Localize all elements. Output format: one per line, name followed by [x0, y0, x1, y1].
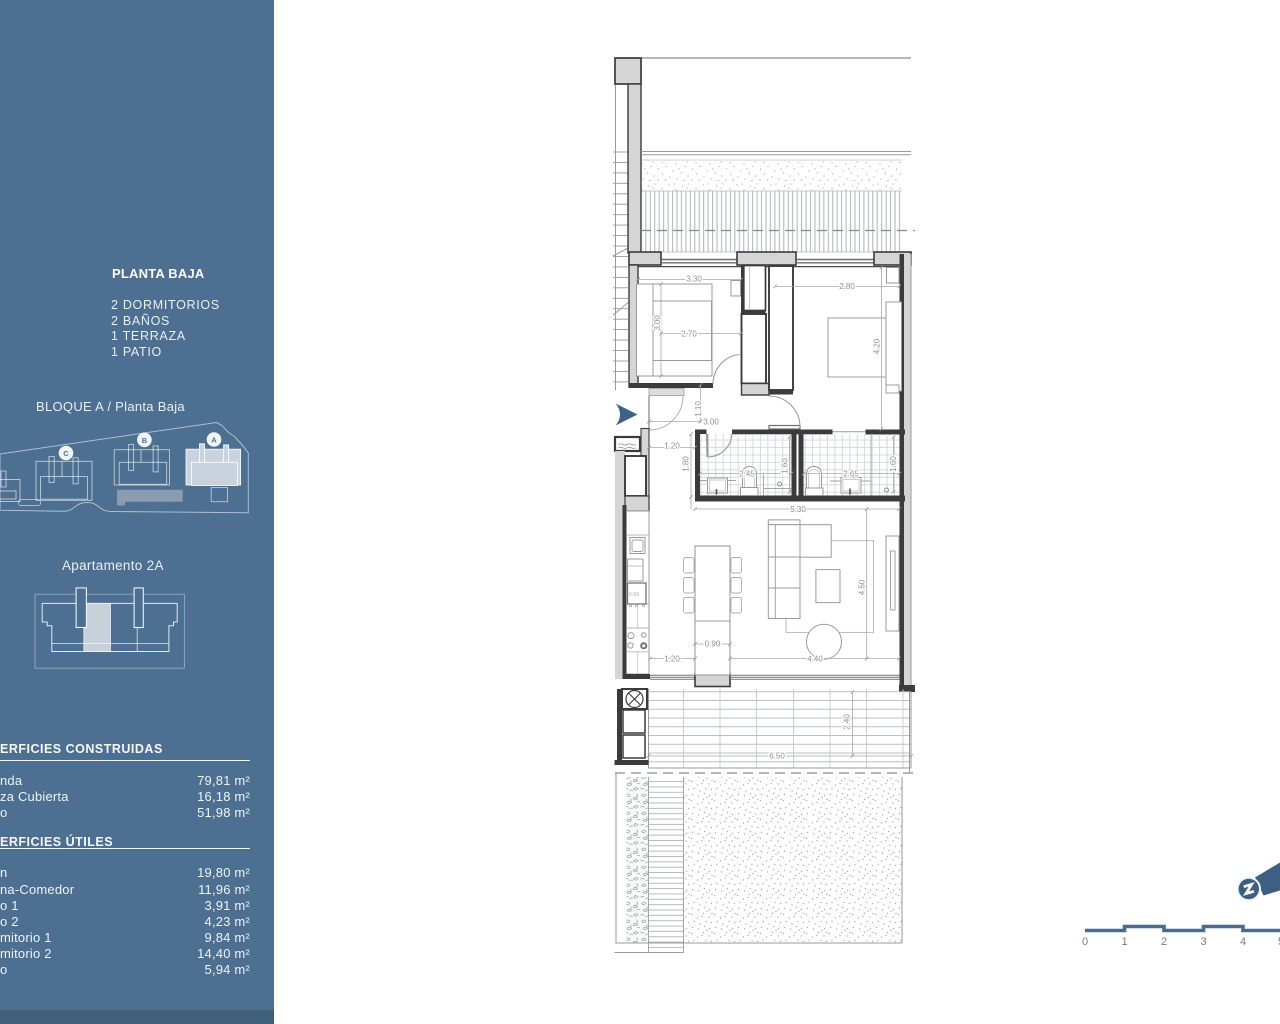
svg-text:0.90: 0.90 — [705, 640, 721, 649]
svg-text:1.20: 1.20 — [664, 442, 680, 451]
svg-text:A: A — [211, 436, 217, 445]
svg-text:2.65: 2.65 — [843, 470, 859, 479]
svg-text:3.00: 3.00 — [653, 315, 662, 331]
svg-text:3.30: 3.30 — [686, 275, 702, 284]
svg-text:C: C — [63, 449, 69, 458]
svg-text:0.60: 0.60 — [629, 592, 640, 598]
svg-text:0: 0 — [1082, 936, 1088, 948]
svg-text:1.10: 1.10 — [694, 401, 703, 417]
svg-text:1.60: 1.60 — [889, 456, 898, 472]
svg-text:1.20: 1.20 — [664, 655, 680, 664]
svg-text:2.40: 2.40 — [843, 714, 852, 730]
svg-text:2.70: 2.70 — [681, 330, 697, 339]
svg-text:2: 2 — [1161, 936, 1167, 948]
svg-text:1: 1 — [1121, 936, 1127, 948]
svg-text:1.80: 1.80 — [682, 456, 691, 472]
svg-text:3.00: 3.00 — [703, 418, 719, 427]
svg-text:4.50: 4.50 — [858, 579, 867, 595]
svg-text:6.50: 6.50 — [769, 752, 785, 761]
svg-text:4.20: 4.20 — [873, 338, 882, 354]
svg-text:4.40: 4.40 — [807, 655, 823, 664]
svg-text:1.60: 1.60 — [781, 458, 790, 474]
svg-text:4: 4 — [1240, 936, 1246, 948]
svg-text:2.80: 2.80 — [839, 282, 855, 291]
svg-text:5.30: 5.30 — [790, 505, 806, 514]
svg-text:3: 3 — [1200, 936, 1206, 948]
svg-text:B: B — [142, 436, 148, 445]
svg-text:2.45: 2.45 — [739, 470, 755, 479]
